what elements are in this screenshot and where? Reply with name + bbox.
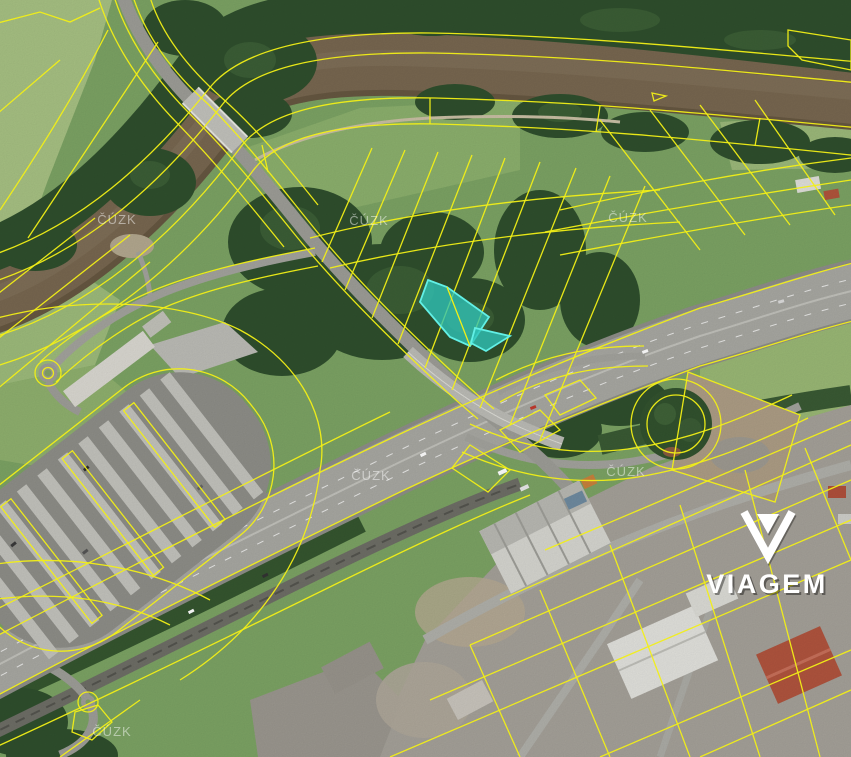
cuzk-watermark: ČÚZK: [97, 212, 136, 227]
viagem-logo-text: VIAGEM: [706, 569, 828, 599]
cuzk-watermark: ČÚZK: [606, 464, 645, 479]
cuzk-watermark: ČÚZK: [349, 213, 388, 228]
cuzk-watermark: ČÚZK: [351, 468, 390, 483]
map-viewport[interactable]: ČÚZK ČÚZK ČÚZK ČÚZK ČÚZK ČÚZK VIAGEM VIA…: [0, 0, 851, 757]
satellite-map: ČÚZK ČÚZK ČÚZK ČÚZK ČÚZK ČÚZK VIAGEM VIA…: [0, 0, 851, 757]
cuzk-watermark: ČÚZK: [92, 724, 131, 739]
cuzk-watermark: ČÚZK: [608, 210, 647, 225]
